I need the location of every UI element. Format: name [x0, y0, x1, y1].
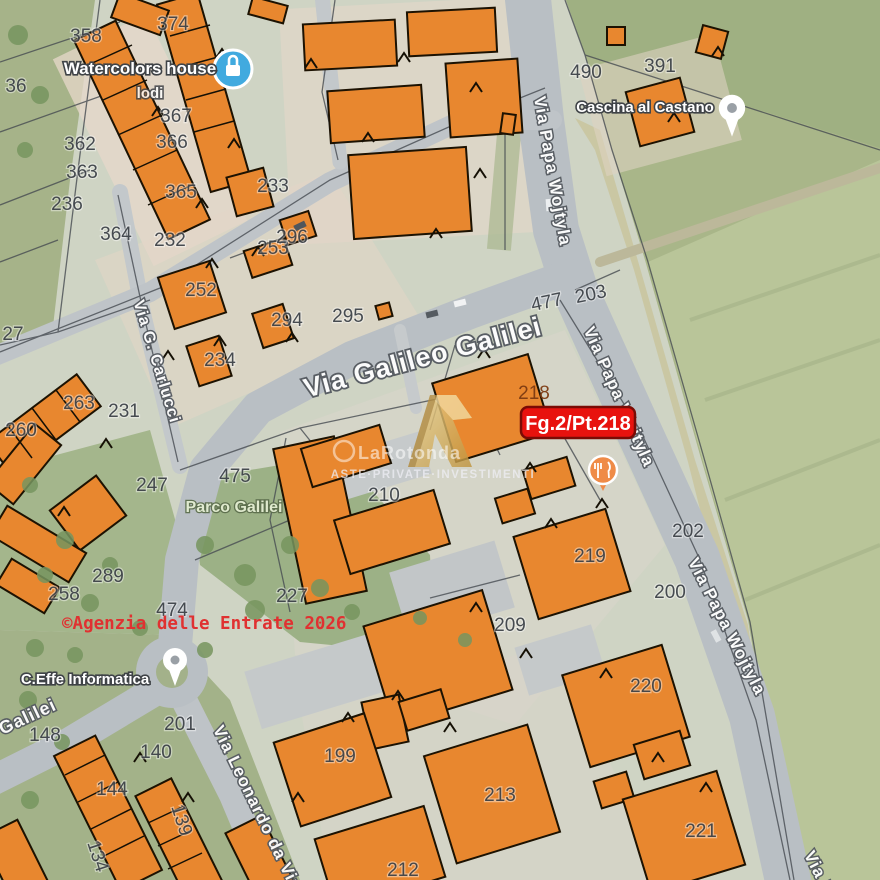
attribution-watermark: ©Agenzia delle Entrate 2026	[62, 614, 346, 634]
parcel-number-227: 227	[276, 586, 308, 607]
parcel-number-366: 366	[156, 132, 188, 153]
cadastral-satellite-map: 3743583639149036736636236336523623336423…	[0, 0, 880, 880]
parcel-number-221: 221	[685, 821, 717, 842]
parcel-number-144: 144	[96, 779, 128, 800]
parcel-number-296: 296	[276, 227, 308, 248]
parcel-number-36: 36	[5, 76, 26, 97]
parcel-number-363: 363	[66, 162, 98, 183]
parcel-number-247: 247	[136, 475, 168, 496]
poi-lodging-marker[interactable]	[214, 50, 252, 88]
parcel-number-364: 364	[100, 224, 132, 245]
parcel-number-148: 148	[29, 725, 61, 746]
parcel-number-475: 475	[219, 466, 251, 487]
parcel-number-233: 233	[257, 176, 289, 197]
parcel-number-362: 362	[64, 134, 96, 155]
parcel-number-218: 218	[518, 383, 550, 404]
parcel-number-358: 358	[70, 26, 102, 47]
subject-parcel-text: Fg.2/Pt.218	[525, 413, 631, 435]
poi-farm-label[interactable]: Cascina al Castano	[576, 99, 714, 116]
parcel-number-295: 295	[332, 306, 364, 327]
parcel-number-391: 391	[644, 56, 676, 77]
map-canvas: 3743583639149036736636236336523623336423…	[0, 0, 880, 880]
parcel-number-201: 201	[164, 714, 196, 735]
parcel-number-202: 202	[672, 521, 704, 542]
parcel-number-212: 212	[387, 860, 419, 880]
parcel-number-367: 367	[160, 106, 192, 127]
parcel-number-490: 490	[570, 62, 602, 83]
parcel-number-374: 374	[157, 14, 189, 35]
parcel-number-236: 236	[51, 194, 83, 215]
parcel-number-234: 234	[204, 350, 236, 371]
poi-office-label[interactable]: C.Effe Informatica	[21, 671, 150, 688]
parcel-number-27: 27	[2, 324, 23, 345]
parcel-number-220: 220	[630, 676, 662, 697]
parcel-number-294: 294	[271, 310, 303, 331]
poi-lodging-sublabel: lodi	[137, 85, 164, 102]
parcel-number-258: 258	[48, 584, 80, 605]
parcel-number-200: 200	[654, 582, 686, 603]
watermark-tagline: ASTE·PRIVATE·INVESTIMENTI	[331, 469, 535, 481]
poi-lodging-label[interactable]: Watercolors house	[64, 59, 216, 78]
park-label: Parco Galilei	[186, 499, 283, 516]
parcel-number-252: 252	[185, 280, 217, 301]
parcel-number-289: 289	[92, 566, 124, 587]
parcel-number-365: 365	[165, 182, 197, 203]
parcel-number-263: 263	[63, 393, 95, 414]
parcel-number-260: 260	[5, 420, 37, 441]
parcel-number-199: 199	[324, 746, 356, 767]
parcel-number-213: 213	[484, 785, 516, 806]
parcel-number-210: 210	[368, 485, 400, 506]
subject-parcel-plate: Fg.2/Pt.218	[521, 407, 635, 438]
parcel-number-209: 209	[494, 615, 526, 636]
parcel-number-219: 219	[574, 546, 606, 567]
parcel-number-232: 232	[154, 230, 186, 251]
parcel-number-140: 140	[140, 742, 172, 763]
parcel-number-231: 231	[108, 401, 140, 422]
watermark-brand: LaRotonda	[358, 443, 461, 463]
